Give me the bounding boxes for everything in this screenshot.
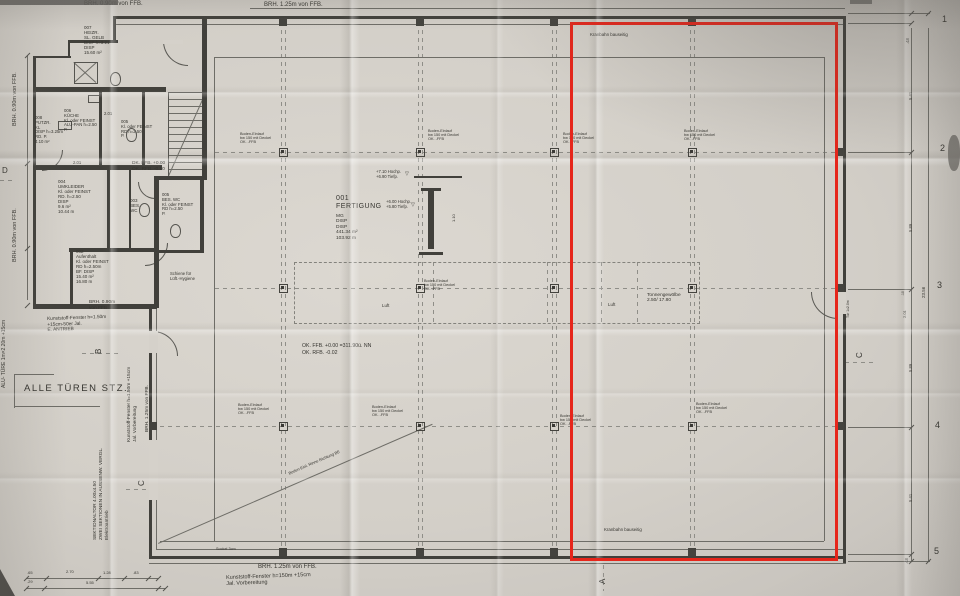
level-note-office: DK. FFB. +0.00 OK. RFB. -0.10 — [132, 161, 165, 172]
dim-tick — [156, 576, 162, 582]
grid-line-dashed — [0, 180, 16, 181]
plan-line — [158, 424, 433, 544]
wall-segment — [68, 40, 70, 58]
column-marker — [279, 148, 288, 157]
door-swing-arc — [138, 182, 155, 199]
dim-tick — [909, 21, 915, 27]
drain-label: Boden-Einlauf bw 150 mit Deckel OK. -FFB — [238, 403, 269, 416]
staircase — [168, 92, 205, 178]
plan-label: 5.89 — [909, 224, 914, 232]
wall-pilaster — [416, 548, 424, 556]
wall-pilaster — [416, 18, 424, 26]
section-marker-b: B — [94, 349, 103, 354]
plan-label: 5.41 — [909, 494, 914, 502]
wall-segment — [113, 16, 846, 19]
wall-pilaster — [279, 548, 287, 556]
wall-segment — [157, 250, 204, 253]
door-opening — [149, 331, 158, 353]
dim-label: 2.70 — [66, 570, 74, 575]
crane-level-note: +6.00 Hochp. +5.80 Tiefp. — [386, 200, 411, 210]
wall-pilaster — [550, 18, 558, 26]
note-brh-top: BRH. 1.25m von FFB. — [264, 2, 323, 9]
plan-label: 005 Kl. oder FEINST RD h=2.50 P. — [121, 120, 152, 139]
grid-number: 2 — [940, 143, 945, 153]
plan-label: 2.01 — [903, 310, 908, 318]
drain-channel-note: Boden-Einl. Rinne Richtung BE — [288, 450, 341, 476]
plan-label: 2.01 — [104, 112, 112, 117]
plan-line — [848, 427, 912, 428]
column-marker — [416, 422, 425, 431]
door-opening — [163, 40, 183, 44]
dim-label: 1.28 — [103, 571, 111, 576]
plan-label: Kunststoff-Fenster h=1.50m +15cm-50er Ja… — [47, 315, 107, 334]
plan-line — [911, 28, 912, 562]
column-marker — [279, 422, 288, 431]
grid-number: 3 — [937, 280, 942, 290]
room-label-fertigung: 001 FERTIGUNG — [336, 195, 382, 211]
plan-label: .48 — [906, 38, 911, 44]
column-marker — [416, 148, 425, 157]
plan-line — [848, 289, 912, 290]
plan-line — [14, 374, 15, 408]
wall-segment — [33, 56, 71, 58]
grid-number: 5 — [934, 546, 939, 556]
plan-line — [848, 554, 912, 555]
column-marker — [550, 422, 559, 431]
floor-level-note: OK. FFB. +0.00 =311.90ü. NN OK. RFB. -0.… — [302, 343, 371, 356]
dim-tick — [163, 586, 169, 592]
wall-segment — [419, 252, 443, 255]
crane-level-note: +7.10 Hochp. +6.90 Tiefp. — [376, 170, 401, 180]
highlight-rectangle — [570, 22, 838, 561]
plan-label: 1.10 — [452, 214, 457, 222]
plan-label: MG DISP DISP 441.34 m² 103.92 m — [336, 214, 358, 241]
wall-segment — [107, 170, 110, 252]
plan-label: ▽ — [405, 172, 409, 178]
wall-segment — [33, 56, 36, 308]
dim-label: .83 — [133, 571, 139, 576]
plan-line — [848, 561, 930, 562]
room-label-putzraum: 008 PUTZR. KL DISP h=3.25m RD. P. 4.10 m… — [35, 116, 63, 145]
plan-line — [848, 13, 930, 14]
plan-line — [250, 8, 845, 9]
section-marker-c: C — [137, 480, 146, 486]
plan-label: Kunststoff-Fenster h=1.50m +15cm Jal. Vo… — [127, 367, 138, 442]
wall-segment — [428, 191, 434, 249]
wall-segment — [154, 252, 159, 308]
section-marker-d: D — [2, 166, 8, 175]
column-marker — [279, 284, 288, 293]
grid-line-dashed — [845, 362, 875, 363]
grid-number: 4 — [935, 420, 940, 430]
drain-label: Boden-Einlauf bw 150 mit Deckel OK. -FFB — [240, 132, 271, 145]
drain-label: Boden-Einlauf bw 150 mit Deckel OK. -FFB — [424, 279, 455, 292]
plan-label: 5.41 — [909, 92, 914, 100]
fixture-shower — [74, 62, 98, 84]
note-fenster-bottom: Kunststoff-Fenster h=150m +15cm Jal. Vor… — [226, 572, 311, 588]
wall-pilaster — [279, 18, 287, 26]
note-brh-bottom: BRH. 1.25m von FFB. — [258, 564, 317, 571]
wall-pilaster — [550, 548, 558, 556]
section-marker-a: A — [598, 579, 607, 584]
wall-segment — [113, 16, 116, 43]
column-marker — [550, 284, 559, 293]
wall-segment — [154, 176, 159, 252]
plan-label: Tür 1x2.0m — [846, 300, 850, 318]
note-alle-tueren: ALLE TÜREN STZ. — [24, 384, 128, 395]
plan-label: Sockel 3cm — [216, 547, 236, 551]
room-label-kueche: 006 KÜCHE Kl. oder FEINST ALU-PAN h=2.50… — [64, 109, 97, 133]
wall-segment — [70, 248, 73, 308]
room-label-heizraum: 007 HEIZR. SL. GELB DISP h=3.21 DISP 15.… — [84, 25, 110, 55]
plan-line — [848, 23, 912, 24]
plan-line — [214, 57, 215, 541]
plan-line — [14, 406, 100, 407]
fixture-wc — [110, 72, 121, 86]
room-label-bes-wc: 005 BES. WC Kl. oder FEINST RD h=2.50 P. — [162, 193, 193, 217]
note-sektionaltor: SEKTIONALTOR 4.00x4.50 ZWEI SEKTIONEN IN… — [93, 448, 111, 541]
blueprint-photo: BRH. 0.90m von FFB.BRH. 1.25m von FFB.BR… — [0, 0, 960, 596]
grid-number: 1 — [942, 14, 947, 24]
plan-line — [149, 563, 846, 564]
section-marker-c: C — [855, 352, 864, 358]
wall-segment — [99, 92, 102, 168]
plan-label: ▽ — [411, 203, 415, 209]
dim-label: 5.55 — [86, 581, 94, 586]
plan-line — [848, 152, 912, 153]
room-label-wc: 003 BES. WC — [130, 198, 140, 213]
plan-label: .10 — [901, 291, 905, 296]
fixture-wc — [139, 203, 150, 217]
door-opening — [149, 440, 158, 500]
note-brh-top-left: BRH. 0.90m von FFB. — [84, 1, 143, 8]
wall-segment — [202, 18, 207, 180]
column-marker — [550, 148, 559, 157]
plan-label: BRH. 1.25m von FFB. — [145, 385, 151, 432]
wall-segment — [200, 176, 204, 252]
plan-line — [27, 55, 28, 300]
plan-line — [14, 374, 54, 375]
room-label-umkleide: 004 UMKLEIDER Kl. oder FEINST RD. h=2.50… — [58, 179, 91, 214]
plan-label: BRH. 0.90m von FFB. — [12, 208, 18, 262]
plan-label: 2.01 — [73, 161, 81, 166]
plan-label: .48 — [905, 558, 910, 564]
plan-label: BRH. 0.90m von FFB. — [12, 72, 18, 126]
plan-line — [26, 588, 166, 589]
plan-line — [928, 28, 929, 562]
door-swing-arc — [163, 41, 188, 66]
plan-label: BRH. 0.90m von FFB — [89, 300, 115, 311]
dim-tick — [926, 11, 932, 17]
dim-tick — [926, 559, 932, 565]
drain-label: Boden-Einlauf bw 150 mit Deckel OK. -FFB — [372, 405, 403, 418]
room-label-aufenthalt: 002 Aufenthalt Kl. oder FEINST RD h=2.50… — [76, 249, 109, 284]
fixture-wc — [170, 224, 181, 238]
wall-segment — [414, 176, 462, 178]
dim-label: .65 — [27, 571, 33, 576]
plan-label: Luft — [382, 303, 389, 308]
drain-label: Boden-Einlauf bw 150 mit Deckel OK. -FFB — [428, 129, 459, 142]
note-alu-tuere: ALU- TÜRE 1m×2.20m +15cm — [2, 320, 8, 388]
plan-label: Schiene für Lüft.-Hygiene — [170, 272, 195, 281]
dim-tick — [25, 303, 31, 309]
plan-label: 5.89 — [909, 364, 914, 372]
plan-label: 23.56 — [921, 287, 926, 298]
dim-label: .29 — [27, 580, 33, 585]
